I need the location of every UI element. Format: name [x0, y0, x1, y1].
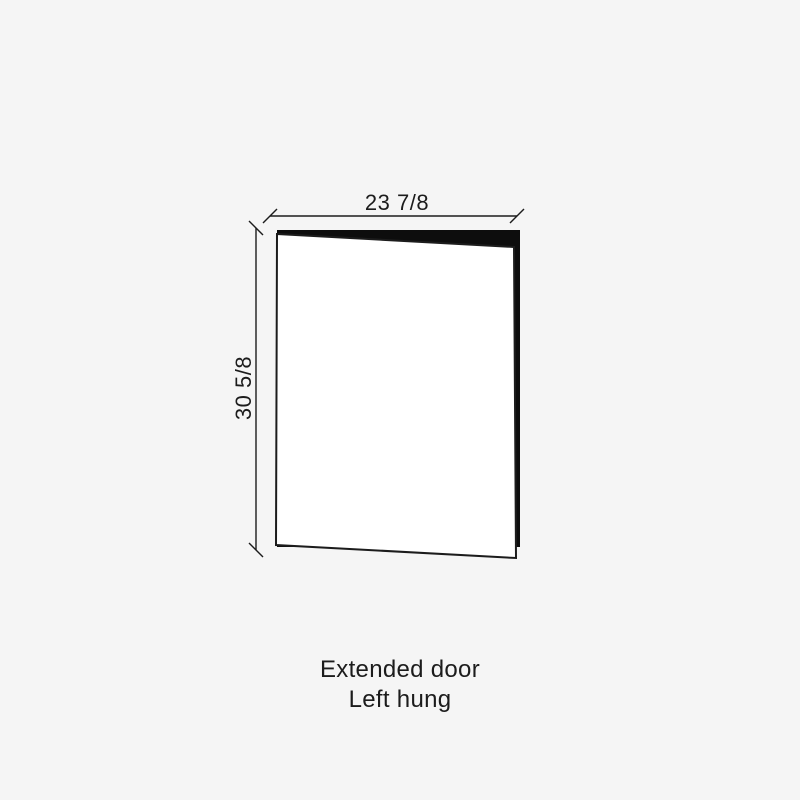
- door-spec-page: 23 7/8 30 5/8 Extended door Left hung: [0, 0, 800, 800]
- width-dimension-label: 23 7/8: [365, 190, 429, 215]
- height-dimension-label: 30 5/8: [231, 356, 256, 420]
- caption: Extended door Left hung: [0, 655, 800, 715]
- caption-line-hinge-side: Left hung: [0, 685, 800, 715]
- height-dimension: 30 5/8: [231, 221, 263, 557]
- width-dimension: 23 7/8: [263, 190, 524, 223]
- caption-line-door-type: Extended door: [0, 655, 800, 685]
- door-face-shape: [276, 234, 516, 558]
